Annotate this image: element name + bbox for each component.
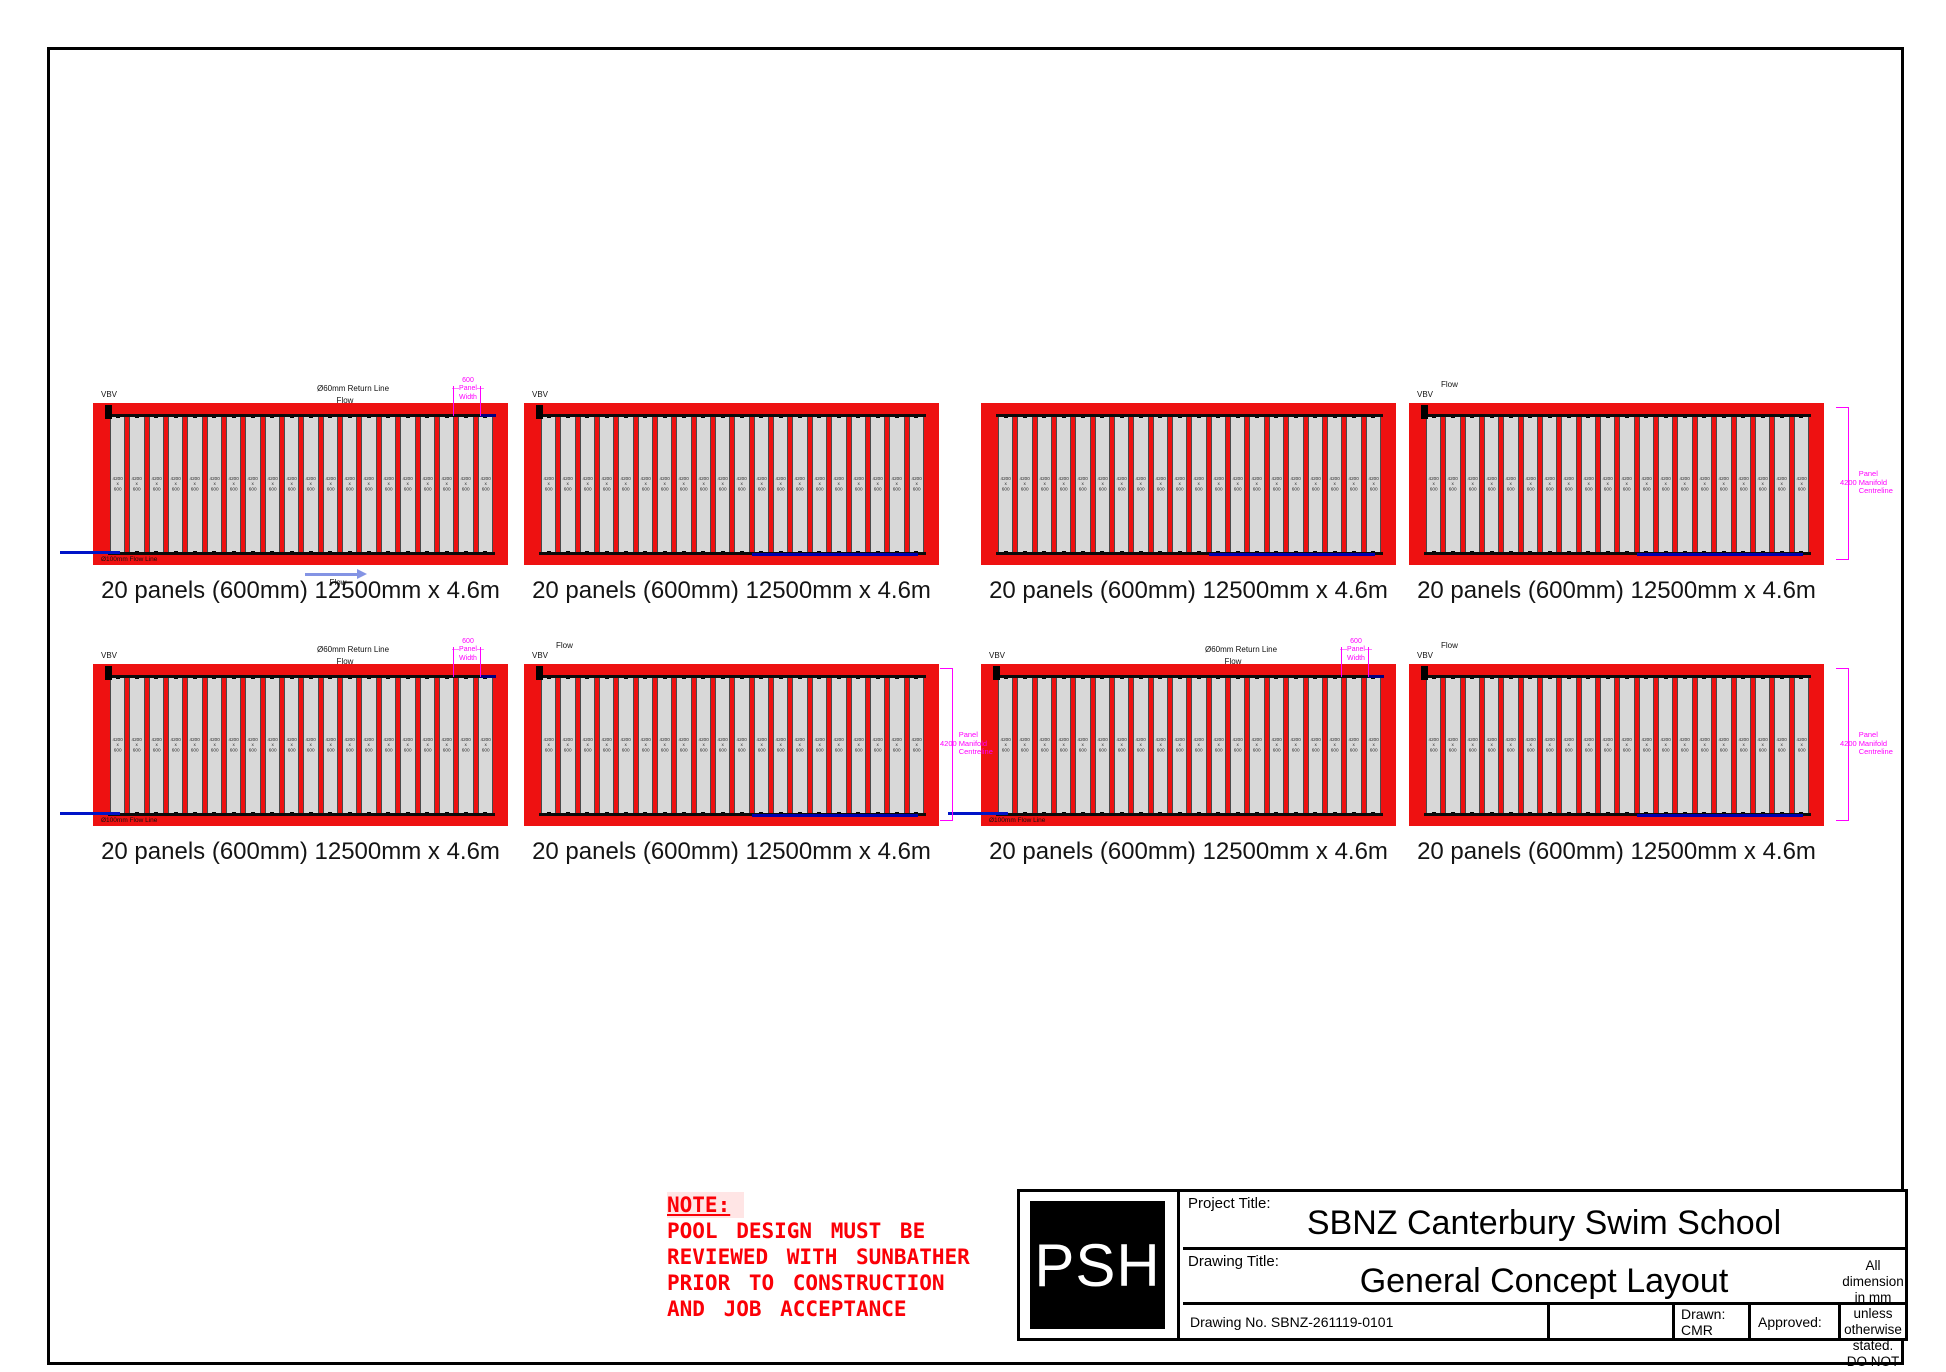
dimension-note-line: otherwise stated. DO NOT SCALE.	[1841, 1322, 1905, 1372]
panel-size-label: 4200x600	[422, 738, 432, 753]
panel-size-label: 4200x600	[1564, 477, 1574, 492]
solar-panel: 4200x600	[715, 676, 730, 815]
flow-arrow-line	[305, 573, 357, 576]
panel-size-label: 4200x600	[679, 477, 689, 492]
panel-size-label: 4200x600	[151, 738, 161, 753]
solar-panel: 4200x600	[676, 676, 691, 815]
drawing-number: Drawing No. SBNZ-261119-0101	[1183, 1305, 1547, 1338]
panel-size-label: 4200x600	[1136, 477, 1146, 492]
panel-size-label: 4200x600	[325, 477, 335, 492]
solar-panel: 4200x600	[696, 676, 711, 815]
top-manifold-line	[1424, 414, 1811, 417]
panel-size-label: 4200x600	[543, 738, 553, 753]
bottom-flow-connection	[1209, 553, 1375, 556]
solar-panel: 4200x600	[1288, 415, 1303, 554]
panel-size-label: 4200x600	[1155, 738, 1165, 753]
solar-panel: 4200x600	[1484, 676, 1499, 815]
panel-size-label: 4200x600	[853, 477, 863, 492]
panel-width-bottom: Width	[433, 655, 503, 663]
panel-size-label: 4200x600	[1680, 477, 1690, 492]
drawing-sheet: 4200x6004200x6004200x6004200x6004200x600…	[0, 0, 1946, 1372]
solar-panel: 4200x600	[439, 676, 454, 815]
panel-size-label: 4200x600	[1487, 738, 1497, 753]
panel-size-label: 4200x600	[621, 477, 631, 492]
solar-panel: 4200x600	[998, 415, 1013, 554]
panel-grid: 4200x6004200x6004200x6004200x6004200x600…	[998, 415, 1381, 554]
panel-size-label: 4200x600	[364, 477, 374, 492]
solar-panel: 4200x600	[207, 415, 222, 554]
solar-panel: 4200x600	[1677, 415, 1692, 554]
divider	[1838, 1305, 1841, 1338]
panel-size-label: 4200x600	[698, 738, 708, 753]
dimension-tick	[453, 386, 454, 416]
panel-size-label: 4200x600	[267, 738, 277, 753]
top-manifold-line	[108, 675, 495, 678]
solar-panel: 4200x600	[1308, 676, 1323, 815]
solar-panel: 4200x600	[1581, 415, 1596, 554]
panel-size-label: 4200x600	[1175, 477, 1185, 492]
solar-panel: 4200x600	[618, 415, 633, 554]
panel-grid: 4200x6004200x6004200x6004200x6004200x600…	[110, 676, 493, 815]
panel-size-label: 4200x600	[1233, 477, 1243, 492]
panel-width-mid: —Panel—	[433, 646, 503, 654]
panel-size-label: 4200x600	[1117, 477, 1127, 492]
return-connection	[480, 675, 496, 678]
solar-panel: 4200x600	[580, 676, 595, 815]
solar-panel: 4200x600	[1658, 676, 1673, 815]
solar-panel: 4200x600	[1230, 676, 1245, 815]
solar-panel: 4200x600	[1230, 415, 1245, 554]
panel-size-label: 4200x600	[1680, 738, 1690, 753]
panel-size-label: 4200x600	[1738, 477, 1748, 492]
panel-grid: 4200x6004200x6004200x6004200x6004200x600…	[541, 676, 924, 815]
panel-size-label: 4200x600	[1252, 738, 1262, 753]
panel-array: 4200x6004200x6004200x6004200x6004200x600…	[1409, 403, 1824, 565]
solar-panel: 4200x600	[1716, 676, 1731, 815]
panel-size-label: 4200x600	[1000, 738, 1010, 753]
bottom-flow-connection	[1637, 553, 1803, 556]
solar-panel: 4200x600	[657, 676, 672, 815]
solar-panel: 4200x600	[541, 676, 556, 815]
panel-width-value: 600	[1321, 638, 1391, 646]
panel-size-label: 4200x600	[718, 477, 728, 492]
solar-panel: 4200x600	[1211, 676, 1226, 815]
solar-panel: 4200x600	[1581, 676, 1596, 815]
top-manifold-line	[1424, 675, 1811, 678]
flow-label: Flow	[1441, 641, 1458, 650]
panel-width-dimension: 600—Panel—Width	[433, 638, 503, 663]
solar-panel: 4200x600	[381, 676, 396, 815]
solar-panel: 4200x600	[792, 415, 807, 554]
note-title: NOTE:	[667, 1192, 744, 1218]
solar-panel: 4200x600	[1075, 676, 1090, 815]
panel-size-label: 4200x600	[795, 477, 805, 492]
solar-panel: 4200x600	[439, 415, 454, 554]
panel-size-label: 4200x600	[1310, 477, 1320, 492]
panel-array: 4200x6004200x6004200x6004200x6004200x600…	[1409, 664, 1824, 826]
panel-size-label: 4200x600	[795, 738, 805, 753]
solar-panel: 4200x600	[265, 415, 280, 554]
solar-panel: 4200x600	[560, 415, 575, 554]
drawing-title-row: Drawing Title: General Concept Layout	[1183, 1250, 1905, 1302]
panel-size-label: 4200x600	[1603, 477, 1613, 492]
panel-size-label: 4200x600	[1622, 738, 1632, 753]
panel-size-label: 4200x600	[209, 477, 219, 492]
solar-panel: 4200x600	[889, 676, 904, 815]
solar-panel: 4200x600	[1056, 676, 1071, 815]
solar-panel: 4200x600	[754, 676, 769, 815]
solar-panel: 4200x600	[1191, 415, 1206, 554]
solar-panel: 4200x600	[870, 676, 885, 815]
solar-panel: 4200x600	[1366, 676, 1381, 815]
solar-panel: 4200x600	[1366, 415, 1381, 554]
panel-size-label: 4200x600	[1757, 477, 1767, 492]
solar-panel: 4200x600	[754, 415, 769, 554]
approved-by: Approved:	[1751, 1305, 1838, 1338]
flow-line	[948, 812, 1008, 815]
panel-size-label: 4200x600	[1059, 738, 1069, 753]
array-caption: 20 panels (600mm) 12500mm x 4.6m	[532, 577, 931, 605]
solar-panel: 4200x600	[478, 415, 493, 554]
panel-size-label: 4200x600	[1448, 738, 1458, 753]
solar-panel: 4200x600	[541, 415, 556, 554]
solar-panel: 4200x600	[1774, 676, 1789, 815]
solar-panel: 4200x600	[361, 415, 376, 554]
solar-panel: 4200x600	[792, 676, 807, 815]
panel-size-label: 4200x600	[1525, 738, 1535, 753]
flow-line	[60, 812, 120, 815]
solar-panel: 4200x600	[420, 415, 435, 554]
panel-size-label: 4200x600	[1213, 738, 1223, 753]
panel-size-label: 4200x600	[461, 738, 471, 753]
solar-panel: 4200x600	[1736, 415, 1751, 554]
panel-size-label: 4200x600	[1175, 738, 1185, 753]
solar-panel: 4200x600	[773, 676, 788, 815]
solar-panel: 4200x600	[618, 676, 633, 815]
array-caption: 20 panels (600mm) 12500mm x 4.6m	[101, 838, 500, 866]
panel-size-label: 4200x600	[1039, 738, 1049, 753]
solar-panel: 4200x600	[1153, 676, 1168, 815]
top-manifold-line	[996, 675, 1383, 678]
panel-size-label: 4200x600	[1329, 738, 1339, 753]
panel-size-label: 4200x600	[911, 738, 921, 753]
array-caption: 20 panels (600mm) 12500mm x 4.6m	[101, 577, 500, 605]
solar-panel: 4200x600	[400, 415, 415, 554]
panel-size-label: 4200x600	[403, 477, 413, 492]
array-caption: 20 panels (600mm) 12500mm x 4.6m	[1417, 838, 1816, 866]
solar-panel: 4200x600	[1697, 676, 1712, 815]
solar-panel: 4200x600	[831, 415, 846, 554]
solar-panel: 4200x600	[207, 676, 222, 815]
panel-size-label: 4200x600	[480, 738, 490, 753]
vbv-valve	[993, 666, 1000, 680]
panel-size-label: 4200x600	[911, 477, 921, 492]
divider	[1672, 1305, 1675, 1338]
panel-grid: 4200x6004200x6004200x6004200x6004200x600…	[1426, 415, 1809, 554]
solar-panel: 4200x600	[1445, 415, 1460, 554]
panel-size-label: 4200x600	[1136, 738, 1146, 753]
note-line: PRIOR TO CONSTRUCTION	[667, 1270, 970, 1296]
return-line-label: Ø60mm Return Line	[1205, 645, 1277, 654]
solar-panel: 4200x600	[1716, 415, 1731, 554]
solar-panel: 4200x600	[226, 676, 241, 815]
panel-size-label: 4200x600	[229, 738, 239, 753]
return-connection	[1368, 675, 1384, 678]
solar-panel: 4200x600	[400, 676, 415, 815]
solar-panel: 4200x600	[1211, 415, 1226, 554]
solar-panel: 4200x600	[1639, 676, 1654, 815]
panel-size-label: 4200x600	[1777, 477, 1787, 492]
solar-panel: 4200x600	[1426, 415, 1441, 554]
array-caption: 20 panels (600mm) 12500mm x 4.6m	[1417, 577, 1816, 605]
panel-size-label: 4200x600	[1564, 738, 1574, 753]
construction-note: NOTE: POOL DESIGN MUST BE REVIEWED WITH …	[667, 1192, 970, 1322]
panel-size-label: 4200x600	[776, 477, 786, 492]
solar-panel: 4200x600	[870, 415, 885, 554]
array-caption: 20 panels (600mm) 12500mm x 4.6m	[532, 838, 931, 866]
panel-size-label: 4200x600	[1506, 477, 1516, 492]
dimension-tick	[480, 386, 481, 416]
logo-cell: PSH	[1020, 1192, 1180, 1338]
solar-panel: 4200x600	[361, 676, 376, 815]
solar-panel: 4200x600	[168, 415, 183, 554]
divider	[1748, 1305, 1751, 1338]
flow-line-label: Ø100mm Flow Line	[989, 817, 1045, 824]
panel-size-label: 4200x600	[1000, 477, 1010, 492]
panel-width-value: 600	[433, 638, 503, 646]
solar-panel: 4200x600	[889, 415, 904, 554]
panel-size-label: 4200x600	[1719, 738, 1729, 753]
solar-panel: 4200x600	[1445, 676, 1460, 815]
panel-size-label: 4200x600	[383, 477, 393, 492]
panel-size-label: 4200x600	[1349, 477, 1359, 492]
solar-panel: 4200x600	[245, 676, 260, 815]
solar-panel: 4200x600	[245, 415, 260, 554]
panel-size-label: 4200x600	[422, 477, 432, 492]
flow-arrow-head	[357, 569, 367, 579]
panel-size-label: 4200x600	[1368, 738, 1378, 753]
bottom-manifold-line	[108, 813, 495, 816]
panel-size-label: 4200x600	[853, 738, 863, 753]
panel-size-label: 4200x600	[229, 477, 239, 492]
solar-panel: 4200x600	[909, 676, 924, 815]
solar-panel: 4200x600	[1346, 415, 1361, 554]
panel-size-label: 4200x600	[1078, 738, 1088, 753]
top-manifold-line	[539, 414, 926, 417]
solar-panel: 4200x600	[1172, 676, 1187, 815]
panel-size-label: 4200x600	[441, 738, 451, 753]
dimension-cap	[1836, 820, 1848, 821]
panel-size-label: 4200x600	[621, 738, 631, 753]
flow-line-label: Ø100mm Flow Line	[101, 817, 157, 824]
info-row: Drawing No. SBNZ-261119-0101 Drawn: CMR …	[1183, 1305, 1905, 1338]
solar-panel: 4200x600	[1561, 676, 1576, 815]
manifold-centreline-label: 4200PanelManifoldCentreline	[1840, 731, 1893, 757]
vbv-valve	[536, 666, 543, 680]
solar-panel: 4200x600	[1484, 415, 1499, 554]
panel-size-label: 4200x600	[1525, 477, 1535, 492]
solar-panel: 4200x600	[1114, 415, 1129, 554]
solar-panel: 4200x600	[1037, 415, 1052, 554]
drawn-by: Drawn: CMR	[1675, 1305, 1748, 1338]
panel-size-label: 4200x600	[776, 738, 786, 753]
flow-line	[60, 551, 120, 554]
panel-size-label: 4200x600	[756, 477, 766, 492]
panel-array: 4200x6004200x6004200x6004200x6004200x600…	[524, 403, 939, 565]
solar-panel: 4200x600	[1095, 676, 1110, 815]
solar-panel: 4200x600	[1153, 415, 1168, 554]
manifold-dim-value: 4200	[1840, 740, 1857, 749]
panel-size-label: 4200x600	[1757, 738, 1767, 753]
panel-size-label: 4200x600	[1020, 738, 1030, 753]
panel-size-label: 4200x600	[248, 738, 258, 753]
panel-array: 4200x6004200x6004200x6004200x6004200x600…	[524, 664, 939, 826]
panel-size-label: 4200x600	[660, 738, 670, 753]
panel-size-label: 4200x600	[543, 477, 553, 492]
panel-array: 4200x6004200x6004200x6004200x6004200x600…	[93, 664, 508, 826]
panel-array: 4200x6004200x6004200x6004200x6004200x600…	[981, 664, 1396, 826]
panel-size-label: 4200x600	[1428, 738, 1438, 753]
bottom-manifold-line	[108, 552, 495, 555]
solar-panel: 4200x600	[734, 676, 749, 815]
dimension-tick	[1368, 647, 1369, 677]
solar-panel: 4200x600	[734, 415, 749, 554]
panel-size-label: 4200x600	[640, 477, 650, 492]
dimension-tick	[480, 647, 481, 677]
panel-size-label: 4200x600	[814, 477, 824, 492]
panel-size-label: 4200x600	[1117, 738, 1127, 753]
solar-panel: 4200x600	[657, 415, 672, 554]
panel-size-label: 4200x600	[660, 477, 670, 492]
panel-size-label: 4200x600	[1603, 738, 1613, 753]
panel-size-label: 4200x600	[737, 738, 747, 753]
solar-panel: 4200x600	[1465, 415, 1480, 554]
panel-size-label: 4200x600	[1467, 738, 1477, 753]
solar-panel: 4200x600	[110, 415, 125, 554]
drawing-title: General Concept Layout	[1183, 1262, 1905, 1301]
solar-panel: 4200x600	[580, 415, 595, 554]
solar-panel: 4200x600	[168, 676, 183, 815]
solar-panel: 4200x600	[1133, 415, 1148, 554]
solar-panel: 4200x600	[420, 676, 435, 815]
solar-panel: 4200x600	[323, 415, 338, 554]
panel-size-label: 4200x600	[834, 477, 844, 492]
dimension-cap	[1836, 559, 1848, 560]
panel-size-label: 4200x600	[563, 477, 573, 492]
solar-panel: 4200x600	[773, 415, 788, 554]
manifold-dim-lines: PanelManifoldCentreline	[1859, 731, 1893, 757]
manifold-dim-lines: PanelManifoldCentreline	[1859, 470, 1893, 496]
project-title-row: Project Title: SBNZ Canterbury Swim Scho…	[1183, 1192, 1905, 1247]
solar-panel: 4200x600	[1794, 415, 1809, 554]
solar-panel: 4200x600	[1037, 676, 1052, 815]
panel-size-label: 4200x600	[171, 477, 181, 492]
panel-size-label: 4200x600	[364, 738, 374, 753]
panel-grid: 4200x6004200x6004200x6004200x6004200x600…	[1426, 676, 1809, 815]
solar-panel: 4200x600	[342, 415, 357, 554]
return-connection	[480, 414, 496, 417]
panel-size-label: 4200x600	[480, 477, 490, 492]
panel-grid: 4200x6004200x6004200x6004200x6004200x600…	[541, 415, 924, 554]
panel-size-label: 4200x600	[1368, 477, 1378, 492]
dimension-tick	[453, 647, 454, 677]
panel-size-label: 4200x600	[1719, 477, 1729, 492]
bottom-flow-connection	[752, 814, 918, 817]
array-caption: 20 panels (600mm) 12500mm x 4.6m	[989, 577, 1388, 605]
top-manifold-line	[539, 675, 926, 678]
empty-cell	[1550, 1305, 1672, 1338]
solar-panel: 4200x600	[265, 676, 280, 815]
panel-grid: 4200x6004200x6004200x6004200x6004200x600…	[998, 676, 1381, 815]
panel-size-label: 4200x600	[287, 738, 297, 753]
panel-size-label: 4200x600	[112, 738, 122, 753]
solar-panel: 4200x600	[1327, 676, 1342, 815]
panel-width-dimension: 600—Panel—Width	[1321, 638, 1391, 663]
panel-size-label: 4200x600	[267, 477, 277, 492]
panel-size-label: 4200x600	[1252, 477, 1262, 492]
solar-panel: 4200x600	[1269, 676, 1284, 815]
panel-size-label: 4200x600	[1641, 738, 1651, 753]
solar-panel: 4200x600	[226, 415, 241, 554]
solar-panel: 4200x600	[696, 415, 711, 554]
solar-panel: 4200x600	[1095, 415, 1110, 554]
solar-panel: 4200x600	[1133, 676, 1148, 815]
solar-panel: 4200x600	[149, 415, 164, 554]
panel-size-label: 4200x600	[325, 738, 335, 753]
solar-panel: 4200x600	[1542, 415, 1557, 554]
panel-size-label: 4200x600	[582, 477, 592, 492]
solar-panel: 4200x600	[1523, 676, 1538, 815]
panel-size-label: 4200x600	[1213, 477, 1223, 492]
note-line: POOL DESIGN MUST BE	[667, 1218, 970, 1244]
panel-size-label: 4200x600	[1271, 738, 1281, 753]
solar-panel: 4200x600	[1774, 415, 1789, 554]
solar-panel: 4200x600	[478, 676, 493, 815]
solar-panel: 4200x600	[1697, 415, 1712, 554]
title-block: PSH Project Title: SBNZ Canterbury Swim …	[1017, 1189, 1908, 1341]
panel-size-label: 4200x600	[190, 738, 200, 753]
top-manifold-line	[108, 414, 495, 417]
solar-panel: 4200x600	[1639, 415, 1654, 554]
panel-size-label: 4200x600	[1467, 477, 1477, 492]
manifold-dim-value: 4200	[1840, 479, 1857, 488]
panel-size-label: 4200x600	[1622, 477, 1632, 492]
note-line: REVIEWED WITH SUNBATHER	[667, 1244, 970, 1270]
panel-array: 4200x6004200x6004200x6004200x6004200x600…	[981, 403, 1396, 565]
top-manifold-line	[996, 414, 1383, 417]
solar-panel: 4200x600	[638, 676, 653, 815]
dimension-note: All dimension in mm unless otherwise sta…	[1841, 1305, 1905, 1338]
panel-size-label: 4200x600	[248, 477, 258, 492]
panel-width-bottom: Width	[1321, 655, 1391, 663]
solar-panel: 4200x600	[187, 415, 202, 554]
panel-width-value: 600	[433, 377, 503, 385]
bottom-flow-connection	[752, 553, 918, 556]
return-line-label: Ø60mm Return Line	[317, 645, 389, 654]
panel-size-label: 4200x600	[1078, 477, 1088, 492]
flow-line-label: Ø100mm Flow Line	[101, 556, 157, 563]
panel-size-label: 4200x600	[1349, 738, 1359, 753]
dimension-cap	[1836, 407, 1848, 408]
solar-panel: 4200x600	[1172, 415, 1187, 554]
solar-panel: 4200x600	[381, 415, 396, 554]
panel-size-label: 4200x600	[345, 477, 355, 492]
panel-size-label: 4200x600	[1796, 477, 1806, 492]
solar-panel: 4200x600	[110, 676, 125, 815]
flow-label: Flow	[337, 396, 354, 405]
panel-size-label: 4200x600	[112, 477, 122, 492]
solar-panel: 4200x600	[812, 676, 827, 815]
